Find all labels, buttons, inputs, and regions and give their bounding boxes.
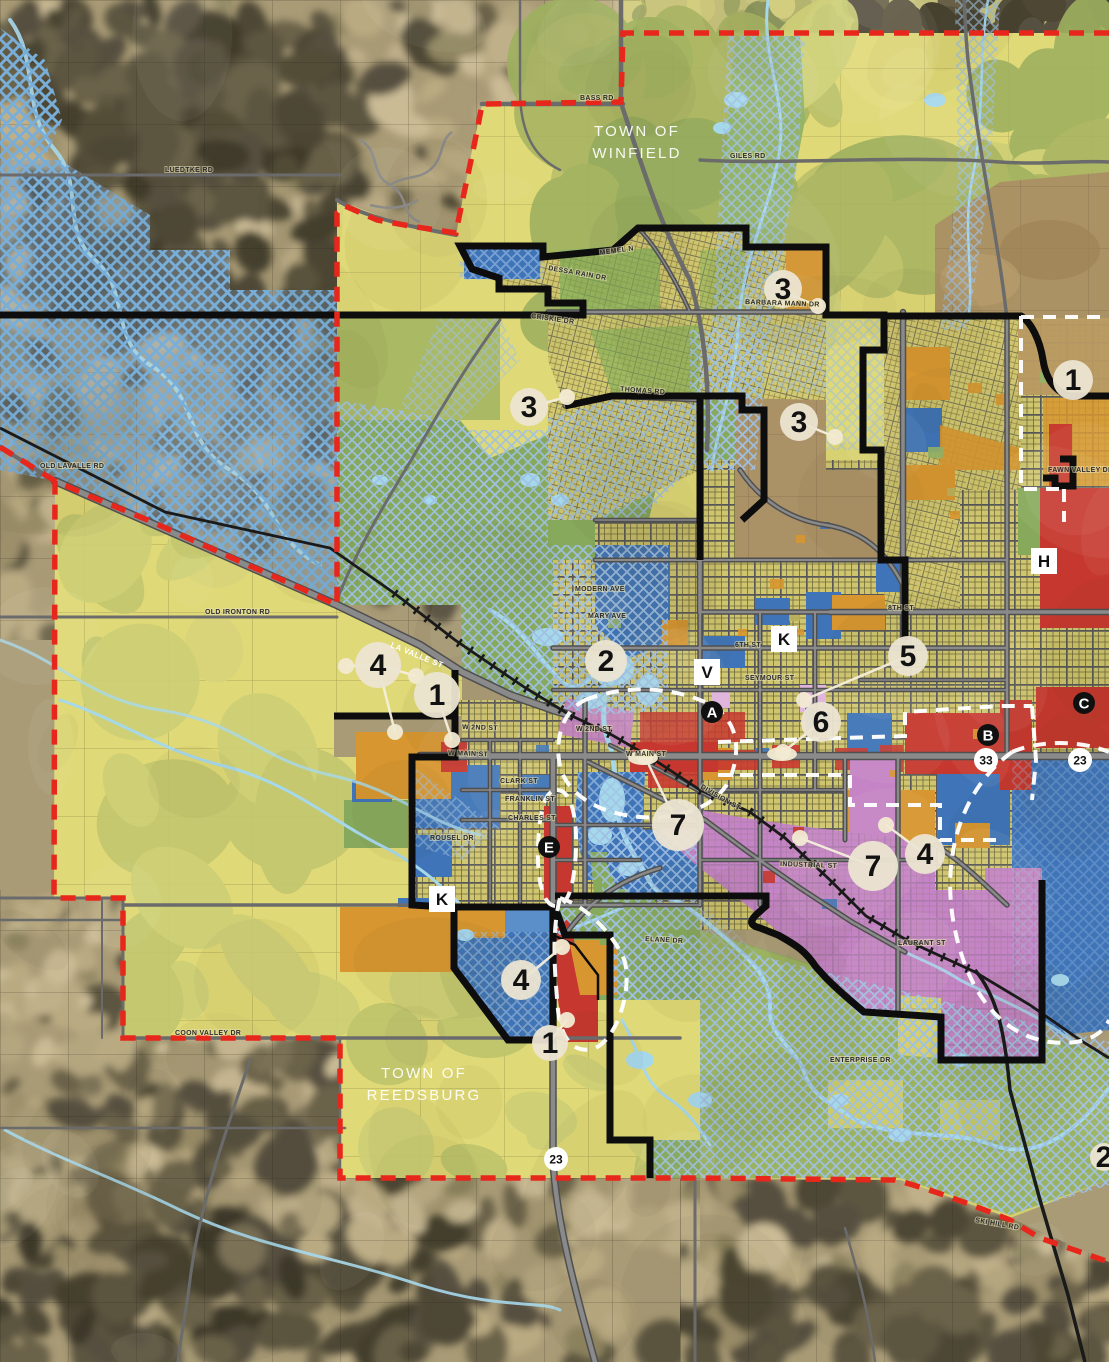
svg-text:MODERN AVE: MODERN AVE: [575, 586, 625, 593]
svg-text:H: H: [1038, 552, 1050, 571]
svg-text:7: 7: [670, 809, 687, 842]
svg-text:8TH ST: 8TH ST: [888, 605, 914, 612]
svg-text:6: 6: [813, 706, 830, 739]
svg-text:4: 4: [513, 964, 530, 997]
svg-text:5: 5: [900, 640, 917, 673]
svg-text:GILES RD: GILES RD: [730, 153, 765, 160]
svg-text:FAWN VALLEY DR: FAWN VALLEY DR: [1048, 467, 1109, 474]
svg-text:CLARK ST: CLARK ST: [500, 778, 538, 785]
svg-text:B: B: [983, 728, 994, 745]
svg-text:OLD LAVALLE RD: OLD LAVALLE RD: [40, 463, 104, 470]
svg-text:K: K: [436, 890, 449, 909]
svg-text:3: 3: [521, 391, 538, 424]
svg-text:K: K: [778, 630, 791, 649]
svg-text:LUEDTKE RD: LUEDTKE RD: [165, 167, 213, 174]
svg-text:E: E: [544, 840, 554, 857]
svg-text:SEYMOUR ST: SEYMOUR ST: [745, 675, 795, 682]
svg-text:2: 2: [598, 645, 615, 678]
svg-text:C: C: [1079, 696, 1090, 713]
svg-text:33: 33: [979, 754, 993, 768]
svg-text:2: 2: [1096, 1141, 1109, 1174]
svg-text:ROUSEL DR: ROUSEL DR: [430, 835, 474, 842]
svg-text:V: V: [701, 663, 713, 682]
svg-text:OLD IRONTON RD: OLD IRONTON RD: [205, 609, 270, 616]
svg-text:W 2ND ST: W 2ND ST: [576, 726, 612, 733]
svg-text:TOWN OF: TOWN OF: [381, 1065, 467, 1082]
svg-text:BASS RD: BASS RD: [580, 95, 614, 102]
svg-text:REEDSBURG: REEDSBURG: [367, 1087, 482, 1104]
svg-text:MARY AVE: MARY AVE: [588, 613, 626, 620]
svg-text:COON VALLEY DR: COON VALLEY DR: [175, 1030, 241, 1037]
svg-text:1: 1: [542, 1027, 559, 1060]
svg-text:4: 4: [370, 649, 387, 682]
svg-text:TOWN OF: TOWN OF: [594, 123, 680, 140]
svg-text:6TH ST: 6TH ST: [735, 642, 761, 649]
svg-text:W MAIN ST: W MAIN ST: [626, 751, 666, 758]
svg-text:3: 3: [791, 406, 808, 439]
svg-text:FRANKLIN ST: FRANKLIN ST: [505, 796, 555, 803]
svg-text:1: 1: [1065, 364, 1082, 397]
svg-text:7: 7: [865, 850, 882, 883]
svg-text:23: 23: [549, 1153, 563, 1167]
svg-text:ENTERPRISE DR: ENTERPRISE DR: [830, 1057, 891, 1064]
svg-text:WINFIELD: WINFIELD: [592, 145, 681, 162]
svg-text:4: 4: [917, 838, 934, 871]
svg-text:W MAIN ST: W MAIN ST: [448, 750, 489, 758]
svg-text:W 2ND ST: W 2ND ST: [462, 724, 498, 732]
svg-text:23: 23: [1073, 754, 1087, 768]
svg-text:CHARLES ST: CHARLES ST: [508, 815, 556, 822]
svg-text:LAURANT ST: LAURANT ST: [898, 940, 946, 947]
svg-text:1: 1: [429, 679, 446, 712]
svg-text:A: A: [707, 705, 718, 722]
